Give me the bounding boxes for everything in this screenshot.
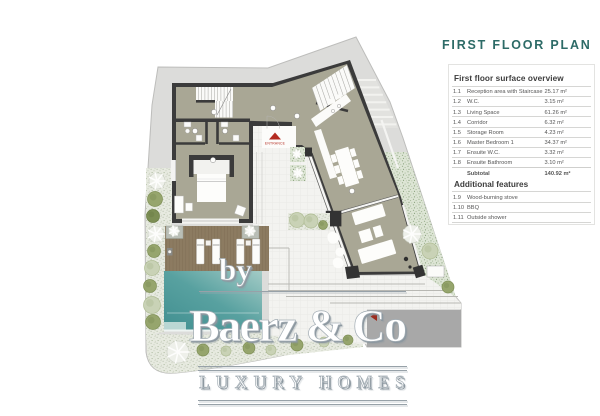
svg-text:ENTRANCE: ENTRANCE <box>265 142 286 146</box>
